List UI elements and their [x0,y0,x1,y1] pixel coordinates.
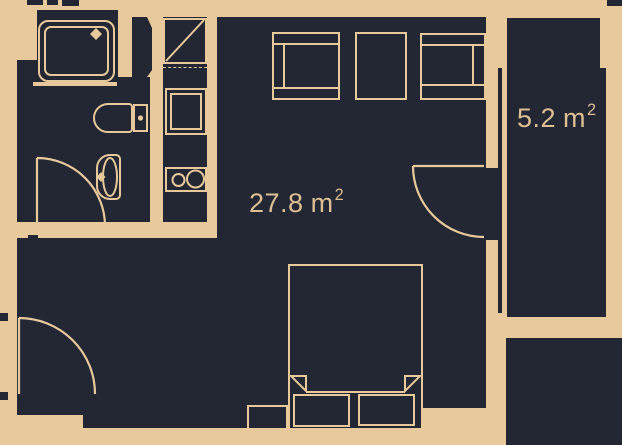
pillow-left [293,394,350,427]
balcony-area-label: 5.2m2 [517,103,596,134]
table [355,32,407,100]
oven-inner [170,93,202,130]
nightstand [247,405,288,430]
balcony-door-opening [486,168,502,240]
balcony-area-sup: 2 [587,101,597,119]
shower-tray-inner [44,26,109,76]
built-in-block [423,408,487,445]
desk-line [472,44,474,86]
toilet-tank [133,104,148,132]
main-room-area-sup: 2 [335,186,345,204]
cooktop [165,167,207,192]
top-edge-mark [62,0,79,6]
wardrobe-cabinet [163,18,207,64]
counter-dashed-line [163,67,207,68]
balcony-area-unit: m [563,103,586,133]
main-room-area-unit: m [311,188,334,218]
balcony-area-value: 5.2 [517,103,556,133]
desk-line [420,84,486,86]
top-right-notch [607,0,622,6]
main-room-area-label: 27.8m2 [249,188,343,219]
shower-step [33,82,117,86]
sofa-line [283,43,285,89]
sink [96,154,121,200]
desk-line [420,44,486,46]
bathroom-floor-right [118,77,150,222]
entrance-door-frame-tab [0,392,8,400]
ventilation-shaft [132,17,152,77]
balcony-floor-top [507,18,600,68]
pillow-right [358,394,415,426]
floor-plan: 27.8m2 5.2m2 [0,0,622,445]
top-edge-mark [27,0,43,5]
entrance-door-frame-tab [0,313,8,321]
main-room-area-value: 27.8 [249,188,304,218]
bathroom-threshold-notch [28,235,38,241]
top-edge-mark [47,0,58,5]
exterior-area [506,338,622,445]
toilet-bowl [93,103,133,133]
